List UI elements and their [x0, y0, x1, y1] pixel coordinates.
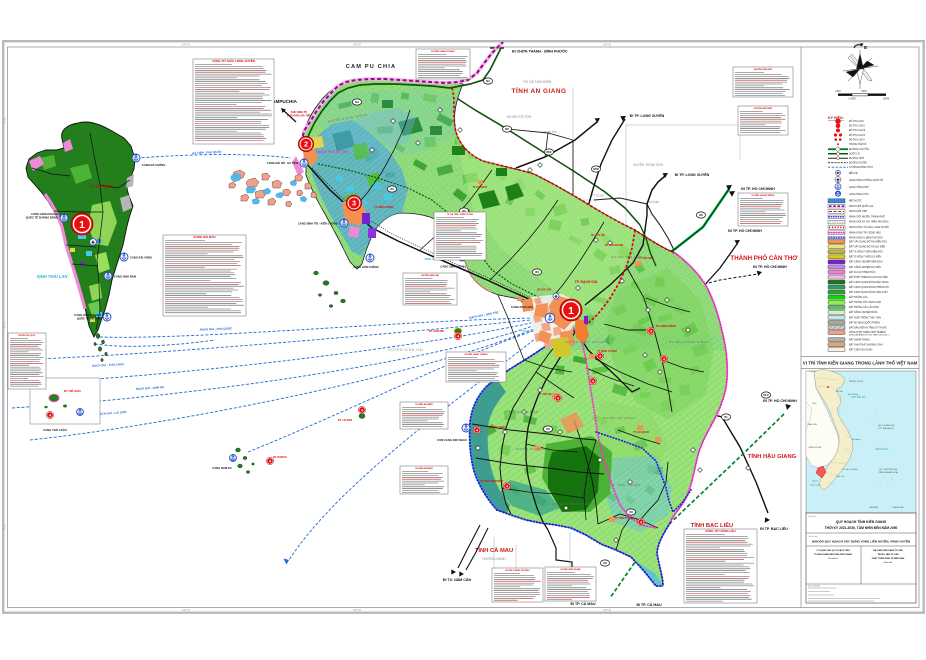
svg-text:P. NÚI SẬP: P. NÚI SẬP	[647, 201, 660, 204]
svg-text:(KHU LẤN BIỂN, ĐÔ THỊ, TMDV, D: (KHU LẤN BIỂN, ĐÔ THỊ, TMDV, DU LỊCH,..)	[849, 334, 890, 337]
svg-text:ĐÔ THỊ LOẠI III: ĐÔ THỊ LOẠI III	[849, 129, 866, 132]
svg-text:RANH VÙNG TÂY SÔNG HẬU: RANH VÙNG TÂY SÔNG HẬU	[849, 231, 881, 234]
svg-text:ĐT. XẺO NHÀU: ĐT. XẺO NHÀU	[489, 426, 506, 429]
svg-text:HUYỆN PHÚ QUỐC: HUYỆN PHÚ QUỐC	[18, 334, 36, 337]
svg-text:4: 4	[592, 379, 594, 383]
svg-text:ĐẤT CÔNG NGHIỆP HIỆN HỮU: ĐẤT CÔNG NGHIỆP HIỆN HỮU	[849, 261, 883, 264]
svg-text:ĐI TP. LONG XUYÊN: ĐI TP. LONG XUYÊN	[630, 113, 665, 118]
svg-text:ĐẤT Ở NÔNG THÔN HIỆN HỮU: ĐẤT Ở NÔNG THÔN HIỆN HỮU	[849, 251, 883, 254]
svg-text:ĐẤT DU LỊCH HIỆN HỮU: ĐẤT DU LỊCH HIỆN HỮU	[849, 271, 876, 274]
svg-text:HUYỆN U MINH: HUYỆN U MINH	[482, 556, 506, 561]
svg-text:63: 63	[603, 561, 607, 565]
svg-text:Tên đồ án:: Tên đồ án:	[808, 515, 817, 518]
svg-text:61C: 61C	[763, 393, 769, 397]
svg-text:ĐẤT CẢNH QUAN RỪNG PHÒNG HỘ: ĐẤT CẢNH QUAN RỪNG PHÒNG HỘ	[849, 286, 889, 289]
svg-text:HUYỆN AN MINH: HUYỆN AN MINH	[516, 446, 546, 451]
svg-text:ĐT. LẠI SƠN: ĐT. LẠI SƠN	[338, 419, 352, 422]
svg-text:ĐẤT TRỒNG LÚA: ĐẤT TRỒNG LÚA	[849, 296, 868, 299]
svg-text:BẢN ĐỒ QUY HOẠCH XÂY DỰNG VÙNG: BẢN ĐỒ QUY HOẠCH XÂY DỰNG VÙNG LIÊN HUYỆ…	[812, 539, 910, 544]
svg-text:Đà Nẵng: Đà Nẵng	[852, 438, 861, 441]
svg-text:ĐÔ THỊ LOẠI I: ĐÔ THỊ LOẠI I	[849, 120, 864, 123]
svg-text:TT. HÒN ĐẤT: TT. HÒN ĐẤT	[473, 186, 488, 189]
svg-text:VỊ TRÍ TỈNH KIÊN GIANG TRONG L: VỊ TRÍ TỈNH KIÊN GIANG TRONG LÃNH THỔ VI…	[803, 361, 918, 366]
svg-text:HUYỆN GÒ QUAO: HUYỆN GÒ QUAO	[603, 415, 635, 420]
svg-text:ĐI TX. NĂM CĂN: ĐI TX. NĂM CĂN	[443, 577, 472, 582]
svg-text:RANH GIỚI HUYỆN, THÀNH PHỐ: RANH GIỚI HUYỆN, THÀNH PHỐ	[849, 215, 885, 218]
svg-text:HUYỆN AN BIÊN: HUYỆN AN BIÊN	[415, 403, 433, 406]
svg-text:ĐT. THỨ MƯỜI MỘT: ĐT. THỨ MƯỜI MỘT	[481, 480, 504, 483]
svg-text:VÙNG TÂY SÔNG HẬU: VÙNG TÂY SÔNG HẬU	[705, 528, 735, 533]
svg-text:10KM: 10KM	[883, 98, 889, 101]
svg-text:ĐI CHƠN THÀNH - BÌNH PHƯỚC: ĐI CHƠN THÀNH - BÌNH PHƯỚC	[512, 49, 568, 54]
svg-text:N1: N1	[486, 79, 490, 83]
svg-text:TT. KIÊN LƯƠNG: TT. KIÊN LƯƠNG	[374, 206, 394, 209]
svg-text:ĐẤT NGHĨA TRANG: ĐẤT NGHĨA TRANG	[849, 338, 870, 341]
svg-text:104°30: 104°30	[182, 42, 191, 46]
svg-text:BRUNÂY: BRUNÂY	[869, 506, 879, 509]
svg-text:ĐT. THỔ CHÂU: ĐT. THỔ CHÂU	[64, 390, 81, 393]
svg-text:VỊNH: VỊNH	[812, 481, 818, 483]
svg-text:(TP. ĐÀ NẴNG): (TP. ĐÀ NẴNG)	[878, 427, 893, 430]
svg-text:ĐẤT Ở NÔNG THÔN DỰ KIẾN: ĐẤT Ở NÔNG THÔN DỰ KIẾN	[849, 256, 881, 259]
svg-text:TP. HÀ TIÊN - KIÊN LƯƠNG: TP. HÀ TIÊN - KIÊN LƯƠNG	[447, 213, 474, 216]
svg-text:63: 63	[546, 427, 550, 431]
svg-text:ĐẤT TRỒNG CÂY LÂU NĂM: ĐẤT TRỒNG CÂY LÂU NĂM	[849, 306, 879, 309]
svg-text:THÁI LAN: THÁI LAN	[807, 423, 817, 426]
svg-text:CẢNG THỔ CHÂU: CẢNG THỔ CHÂU	[43, 427, 67, 432]
svg-text:THÀNH PHỐ CẦN THƠ: THÀNH PHỐ CẦN THƠ	[730, 255, 798, 262]
svg-text:QUY HOẠCH TỈNH KIÊN GIANG: QUY HOẠCH TỈNH KIÊN GIANG	[836, 519, 887, 524]
svg-text:VÙNG PHÁT TRIỂN KINH TẾ BIỂN: VÙNG PHÁT TRIỂN KINH TẾ BIỂN	[849, 331, 886, 334]
svg-text:MALAYSIA: MALAYSIA	[893, 506, 904, 509]
svg-text:RANH GIỚI TỈNH: RANH GIỚI TỈNH	[849, 210, 867, 213]
svg-text:HUYỆN VĨNH THUẬN: HUYỆN VĨNH THUẬN	[561, 568, 581, 571]
svg-text:104°30: 104°30	[182, 608, 191, 612]
svg-text:HUYỆN GIỒNG RIỀNG: HUYỆN GIỒNG RIỀNG	[751, 194, 774, 197]
svg-text:TT. GÒ QUAO: TT. GÒ QUAO	[633, 431, 649, 434]
svg-text:TUYẾN ĐƯỜNG THỦY: TUYẾN ĐƯỜNG THỦY	[849, 166, 874, 169]
svg-text:RANH VÙNG TỨ GIÁC LONG XUYÊN: RANH VÙNG TỨ GIÁC LONG XUYÊN	[849, 226, 889, 229]
svg-text:VỊNH BẮC BỘ: VỊNH BẮC BỘ	[851, 396, 866, 399]
svg-text:QĐ. TRƯỜNG SA: QĐ. TRƯỜNG SA	[879, 468, 897, 471]
svg-text:BIỂN ĐÔNG: BIỂN ĐÔNG	[876, 448, 889, 451]
svg-text:THÁI LAN: THÁI LAN	[810, 484, 821, 487]
svg-text:10°30: 10°30	[2, 117, 6, 124]
svg-text:ĐI TP. CÀ MAU: ĐI TP. CÀ MAU	[636, 602, 661, 607]
svg-text:4: 4	[640, 520, 642, 524]
svg-text:HUYỆN KIÊN HẢI: HUYỆN KIÊN HẢI	[421, 274, 439, 277]
svg-text:10°00: 10°00	[2, 321, 6, 328]
svg-text:Hà Nội: Hà Nội	[836, 391, 843, 393]
svg-text:ĐẠI DIỆN LIÊN DANH TƯ VẤN: ĐẠI DIỆN LIÊN DANH TƯ VẤN	[873, 549, 903, 552]
svg-text:ĐƯỜNG CAO TỐC: ĐƯỜNG CAO TỐC	[849, 148, 869, 151]
svg-text:ĐƯỜNG HUYỆN: ĐƯỜNG HUYỆN	[849, 162, 867, 165]
svg-text:CẢNG HÀNG KHÔNG QUỐC TẾ: CẢNG HÀNG KHÔNG QUỐC TẾ	[849, 179, 883, 182]
svg-text:4: 4	[361, 408, 363, 412]
svg-text:TP. PHÚ QUỐC: TP. PHÚ QUỐC	[91, 184, 114, 189]
svg-text:TỈNH AN GIANG: TỈNH AN GIANG	[512, 86, 567, 95]
svg-text:ĐẤT KHAI THÁC KHOÁNG SẢN: ĐẤT KHAI THÁC KHOÁNG SẢN	[849, 343, 883, 346]
svg-text:VỊNH THÁI LAN: VỊNH THÁI LAN	[37, 274, 69, 279]
svg-text:HUYỆN AN MINH: HUYỆN AN MINH	[415, 467, 433, 470]
svg-text:80: 80	[699, 213, 703, 217]
svg-text:HUYỆN U MINH THƯỢNG: HUYỆN U MINH THƯỢNG	[552, 501, 598, 506]
svg-text:HUYỆN THOẠI SƠN: HUYỆN THOẠI SƠN	[633, 162, 663, 167]
svg-text:HUYỆN GIANG THÀNH: HUYỆN GIANG THÀNH	[431, 50, 455, 53]
svg-text:ĐT. NAM DU: ĐT. NAM DU	[273, 456, 287, 459]
svg-text:0KM: 0KM	[836, 90, 841, 93]
svg-text:ĐI TP. LONG XUYÊN: ĐI TP. LONG XUYÊN	[675, 172, 710, 177]
svg-text:PHÁT TRIỂN KINH TẾ MIỀN NAM: PHÁT TRIỂN KINH TẾ MIỀN NAM	[872, 557, 905, 560]
svg-text:105°00: 105°00	[353, 608, 362, 612]
svg-text:CAMPUCHIA: CAMPUCHIA	[808, 446, 822, 449]
svg-text:9°30: 9°30	[2, 524, 6, 530]
svg-text:TP. RẠCH GIÁ: TP. RẠCH GIÁ	[575, 279, 598, 284]
svg-text:4: 4	[457, 334, 459, 338]
svg-text:N2: N2	[505, 127, 509, 131]
svg-text:RANH GIỚI QUỐC GIA: RANH GIỚI QUỐC GIA	[849, 205, 874, 208]
svg-text:HUYỆN GIỒNG RIỀNG: HUYỆN GIỒNG RIỀNG	[669, 339, 709, 344]
svg-text:VÙNG HẢI ĐẢO: VÙNG HẢI ĐẢO	[193, 234, 216, 239]
svg-text:BẾN XE: BẾN XE	[849, 172, 858, 175]
svg-text:QUỐC LỘ: QUỐC LỘ	[849, 153, 860, 156]
svg-text:Tên bản đồ:: Tên bản đồ:	[808, 535, 818, 538]
svg-text:ĐẤT CẢNH QUAN RỪNG ĐẶC DỤNG: ĐẤT CẢNH QUAN RỪNG ĐẶC DỤNG	[849, 281, 889, 284]
svg-text:4: 4	[663, 357, 665, 361]
svg-text:RANH VÙNG U MINH THƯỢNG: RANH VÙNG U MINH THƯỢNG	[849, 237, 883, 240]
svg-text:80: 80	[535, 270, 539, 274]
svg-text:RANH GIỚI XÃ, THỊ TRẤN, PHƯỜNG: RANH GIỚI XÃ, THỊ TRẤN, PHƯỜNG	[849, 221, 889, 224]
svg-text:ĐT. MỸ LÂM: ĐT. MỸ LÂM	[537, 289, 551, 292]
svg-text:ĐẤT NÔNG NGHIỆP KHÁC: ĐẤT NÔNG NGHIỆP KHÁC	[849, 311, 878, 314]
svg-text:CẢNG TỔNG HỢP: CẢNG TỔNG HỢP	[849, 186, 869, 189]
svg-text:TỈNH HẬU GIANG: TỈNH HẬU GIANG	[748, 453, 797, 460]
svg-text:TT. MINH LƯƠNG: TT. MINH LƯƠNG	[597, 350, 617, 353]
svg-text:H. VĨNH THUẬN: H. VĨNH THUẬN	[612, 482, 641, 487]
svg-text:TRUNG TÂM TƯ VẤN: TRUNG TÂM TƯ VẤN	[877, 553, 899, 556]
svg-text:TT. THỨ BA: TT. THỨ BA	[538, 393, 552, 396]
svg-text:80B: 80B	[593, 167, 599, 171]
svg-text:VÙNG TỨ GIÁC LONG XUYÊN: VÙNG TỨ GIÁC LONG XUYÊN	[212, 58, 255, 63]
svg-text:ĐI TP. BẠC LIÊU: ĐI TP. BẠC LIÊU	[760, 526, 788, 531]
svg-text:TRUNG TÂM XÃ: TRUNG TÂM XÃ	[849, 143, 867, 146]
svg-text:3: 3	[352, 199, 356, 208]
svg-text:TP. Hồ Chí Minh: TP. Hồ Chí Minh	[842, 468, 859, 471]
svg-text:4: 4	[476, 428, 478, 432]
svg-text:63: 63	[629, 510, 633, 514]
svg-text:ĐT. TÂY HỒ: ĐT. TÂY HỒ	[591, 234, 604, 237]
svg-text:TRUNG QUỐC: TRUNG QUỐC	[849, 380, 864, 383]
svg-text:TỈNH BẠC LIÊU: TỈNH BẠC LIÊU	[691, 521, 734, 529]
svg-text:2.5KM: 2.5KM	[849, 98, 856, 101]
svg-text:Cần Thơ: Cần Thơ	[836, 475, 845, 478]
svg-text:1: 1	[79, 220, 85, 231]
svg-text:5KM: 5KM	[862, 90, 867, 93]
svg-text:HUYỆN AN BIÊN: HUYỆN AN BIÊN	[509, 409, 539, 414]
svg-text:HUYỆN TRI TÔN: HUYỆN TRI TÔN	[507, 114, 532, 119]
svg-text:ĐI TP. CÀ MAU: ĐI TP. CÀ MAU	[570, 601, 595, 606]
svg-text:HUYỆN U MINH THƯỢNG: HUYỆN U MINH THƯỢNG	[505, 569, 530, 572]
svg-text:Giám đốc: Giám đốc	[884, 561, 893, 564]
svg-text:THÀNH PHỐ HÀ TIÊN: THÀNH PHỐ HÀ TIÊN	[316, 149, 349, 154]
svg-text:HUYỆN KIÊN HẢI: HUYỆN KIÊN HẢI	[388, 347, 424, 352]
svg-text:105°30: 105°30	[603, 42, 612, 46]
svg-text:ĐT. TÂN KHÁNH: ĐT. TÂN KHÁNH	[605, 244, 624, 247]
svg-text:LÀO: LÀO	[812, 402, 817, 405]
svg-text:ĐẤT CẢNH QUAN RỪNG SẢN XUẤT: ĐẤT CẢNH QUAN RỪNG SẢN XUẤT	[849, 291, 888, 294]
svg-text:ỦY BAN NHÂN DÂN TỈNH KIÊN GIAN: ỦY BAN NHÂN DÂN TỈNH KIÊN GIANG	[814, 553, 852, 556]
svg-text:ĐI TP. HỒ CHÍ MINH: ĐI TP. HỒ CHÍ MINH	[728, 228, 762, 233]
svg-text:KÝ HIỆU:: KÝ HIỆU:	[828, 115, 844, 120]
svg-text:80C: 80C	[546, 150, 552, 154]
svg-text:ĐÔ THỊ LOẠI V: ĐÔ THỊ LOẠI V	[849, 138, 865, 141]
svg-text:ĐẤT XÂY DỰNG ĐÔ THỊ DỰ KIẾN: ĐẤT XÂY DỰNG ĐÔ THỊ DỰ KIẾN	[849, 246, 885, 249]
svg-text:ĐẤT AN NINH QUỐC PHÒNG: ĐẤT AN NINH QUỐC PHÒNG	[849, 321, 880, 324]
svg-text:ĐT. HÒN TRE: ĐT. HÒN TRE	[429, 330, 444, 333]
svg-text:105°30: 105°30	[603, 608, 612, 612]
svg-text:4: 4	[506, 484, 508, 488]
svg-text:HUYỆN HÒN ĐẤT: HUYỆN HÒN ĐẤT	[754, 68, 773, 71]
svg-text:ĐẤT PHÁT TRIỂN DU LỊCH DỰ KIẾN: ĐẤT PHÁT TRIỂN DU LỊCH DỰ KIẾN	[849, 276, 888, 279]
svg-text:Chủ đầu tư: Chủ đầu tư	[828, 557, 839, 560]
svg-text:(TỈNH KHÁNH HÒA): (TỈNH KHÁNH HÒA)	[878, 471, 898, 474]
svg-text:ĐẤT ĐẦU MỐI HẠ TẦNG KỸ THUẬT: ĐẤT ĐẦU MỐI HẠ TẦNG KỸ THUẬT	[849, 326, 887, 329]
svg-text:CAM PU CHIA: CAM PU CHIA	[346, 64, 397, 70]
svg-text:80: 80	[390, 187, 394, 191]
svg-text:61: 61	[724, 415, 728, 419]
svg-text:THỊ XÃ TỊNH BIÊN: THỊ XÃ TỊNH BIÊN	[523, 79, 552, 84]
svg-text:HUYỆN TÂN HIỆP: HUYỆN TÂN HIỆP	[611, 254, 643, 259]
svg-text:HUYỆN CHÂU THÀNH: HUYỆN CHÂU THÀNH	[566, 339, 605, 344]
svg-text:CỬA KHẨU HÀ TIÊN: CỬA KHẨU HÀ TIÊN	[287, 115, 311, 118]
svg-text:HUYỆN CHÂU THÀNH: HUYỆN CHÂU THÀNH	[465, 353, 488, 356]
svg-text:Tỷ lệ: 1/50.000: Tỷ lệ: 1/50.000	[808, 585, 820, 588]
svg-text:QĐ. HOÀNG SA: QĐ. HOÀNG SA	[878, 424, 895, 427]
svg-text:ĐÔ THỊ LOẠI IV: ĐÔ THỊ LOẠI IV	[849, 134, 866, 137]
svg-text:MẶT NƯỚC: MẶT NƯỚC	[849, 200, 862, 203]
svg-text:ĐẤT TRỒNG CÂY HÀNG NĂM: ĐẤT TRỒNG CÂY HÀNG NĂM	[849, 301, 881, 304]
svg-text:4: 4	[49, 413, 51, 417]
svg-text:ĐI TP. HỒ CHÍ MINH: ĐI TP. HỒ CHÍ MINH	[763, 398, 797, 403]
svg-text:1: 1	[568, 306, 574, 317]
svg-text:4: 4	[599, 354, 601, 358]
svg-text:ĐẤT XÂY DỰNG ĐÔ THỊ HIỆN HỮU: ĐẤT XÂY DỰNG ĐÔ THỊ HIỆN HỮU	[849, 241, 887, 244]
svg-text:N1: N1	[355, 100, 359, 104]
svg-text:ĐI TP. HỒ CHÍ MINH: ĐI TP. HỒ CHÍ MINH	[741, 186, 775, 191]
svg-text:2: 2	[304, 140, 308, 149]
svg-text:4: 4	[650, 329, 652, 333]
svg-text:B: B	[864, 45, 867, 50]
svg-text:ĐƯỜNG TỈNH: ĐƯỜNG TỈNH	[849, 157, 864, 160]
svg-text:CƠ QUAN LẬP QUY HOẠCH TỈNH: CƠ QUAN LẬP QUY HOẠCH TỈNH	[816, 549, 850, 552]
svg-text:105°00: 105°00	[353, 42, 362, 46]
svg-text:ĐI TP. HỒ CHÍ MINH: ĐI TP. HỒ CHÍ MINH	[753, 264, 787, 269]
svg-text:ĐẤT CHƯA SỬ DỤNG: ĐẤT CHƯA SỬ DỤNG	[849, 349, 873, 352]
svg-text:HUYỆN TÂN HIỆP: HUYỆN TÂN HIỆP	[754, 107, 773, 110]
svg-text:ĐÔ THỊ LOẠI II: ĐÔ THỊ LOẠI II	[849, 125, 865, 128]
svg-text:TT. VĨNH THUẬN: TT. VĨNH THUẬN	[615, 517, 634, 520]
svg-text:Hải Phòng: Hải Phòng	[848, 393, 859, 396]
svg-text:4: 4	[557, 396, 559, 400]
svg-text:ĐẤT NUÔI TRỒNG THỦY SẢN: ĐẤT NUÔI TRỒNG THỦY SẢN	[849, 316, 881, 319]
svg-text:ĐẤT CÔNG NGHIỆP DỰ KIẾN: ĐẤT CÔNG NGHIỆP DỰ KIẾN	[849, 266, 881, 269]
svg-text:4: 4	[269, 459, 271, 463]
svg-text:ĐT. GIỒNG RIỀNG: ĐT. GIỒNG RIỀNG	[656, 325, 677, 328]
svg-text:CẢNG HÀNG HÓA: CẢNG HÀNG HÓA	[849, 193, 869, 196]
svg-text:TT. ÓC EO: TT. ÓC EO	[592, 195, 604, 198]
svg-text:THỜI KỲ 2021-2030, TẦM NHÌN ĐẾ: THỜI KỲ 2021-2030, TẦM NHÌN ĐẾN NĂM 2050	[825, 525, 898, 530]
